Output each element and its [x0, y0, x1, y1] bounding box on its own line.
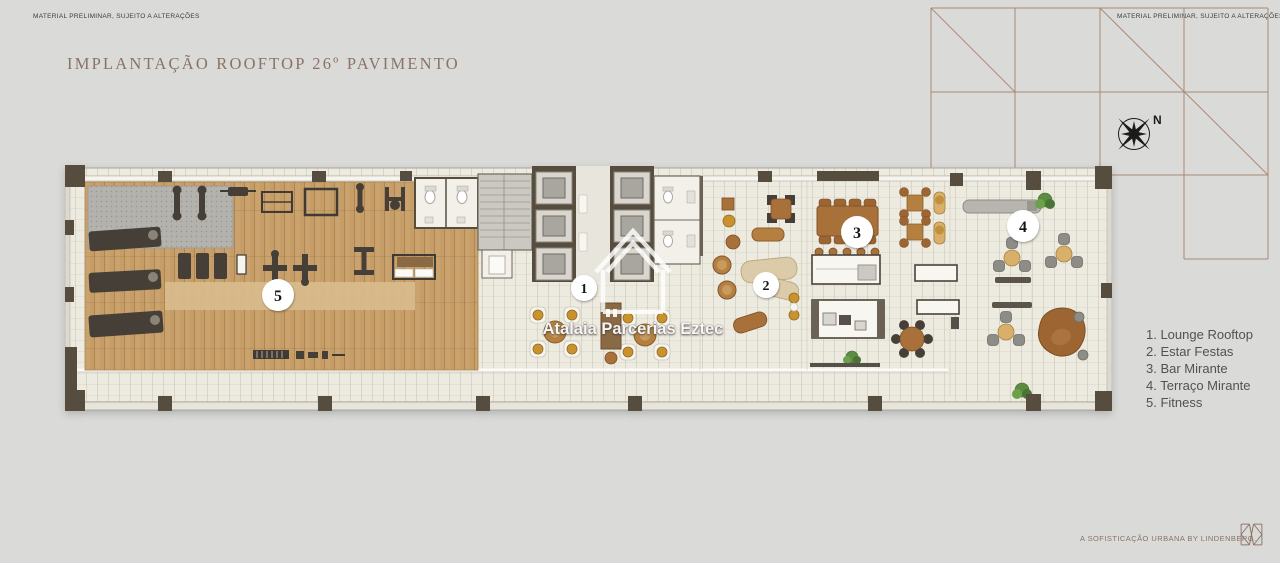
- north-label: N: [1153, 113, 1162, 127]
- watermark-text: Atalaia Parcerias Eztec: [538, 320, 728, 339]
- house-icon: [592, 222, 674, 314]
- disclaimer-left: MATERIAL PRELIMINAR, SUJEITO A ALTERAÇÕE…: [33, 13, 200, 20]
- bar-kitchen: [812, 300, 884, 338]
- festas-bench: [752, 228, 784, 241]
- fitness-bathrooms: [415, 178, 478, 228]
- legend-item-fitness: 5. Fitness: [1146, 394, 1253, 411]
- page-root: MATERIAL PRELIMINAR, SUJEITO A ALTERAÇÕE…: [0, 0, 1280, 563]
- svg-text:1: 1: [581, 282, 588, 297]
- legend-item-terraco: 4. Terraço Mirante: [1146, 377, 1253, 394]
- compass-icon: N: [1107, 108, 1167, 160]
- brand-tagline: A SOFISTICAÇÃO URBANA BY LINDENBERG.: [1080, 534, 1257, 543]
- svg-text:4: 4: [1019, 219, 1027, 236]
- legend-list: 1. Lounge Rooftop 2. Estar Festas 3. Bar…: [1146, 326, 1253, 411]
- legend-item-lounge: 1. Lounge Rooftop: [1146, 326, 1253, 343]
- brand-logo-icon: [1238, 521, 1265, 548]
- elevator-cabs-a: [536, 172, 572, 280]
- plan-marker-3: 3: [841, 216, 873, 248]
- plan-marker-4: 4: [1007, 210, 1039, 242]
- legend-item-bar: 3. Bar Mirante: [1146, 360, 1253, 377]
- plan-marker-2: 2: [753, 272, 779, 298]
- svg-text:3: 3: [853, 225, 861, 242]
- legend-item-festas: 2. Estar Festas: [1146, 343, 1253, 360]
- fitness-zone: [85, 178, 478, 370]
- svg-text:2: 2: [763, 279, 770, 294]
- compass-rose: [1118, 118, 1149, 149]
- floor-plan: 1 2 3 4 5: [65, 165, 1112, 415]
- page-title: IMPLANTAÇÃO ROOFTOP 26º PAVIMENTO: [67, 54, 460, 74]
- legend: 1. Lounge Rooftop 2. Estar Festas 3. Bar…: [1146, 326, 1253, 411]
- festas-table: [767, 195, 795, 223]
- svg-text:5: 5: [274, 288, 282, 305]
- plan-marker-5: 5: [262, 279, 294, 311]
- treadmills: [88, 227, 163, 338]
